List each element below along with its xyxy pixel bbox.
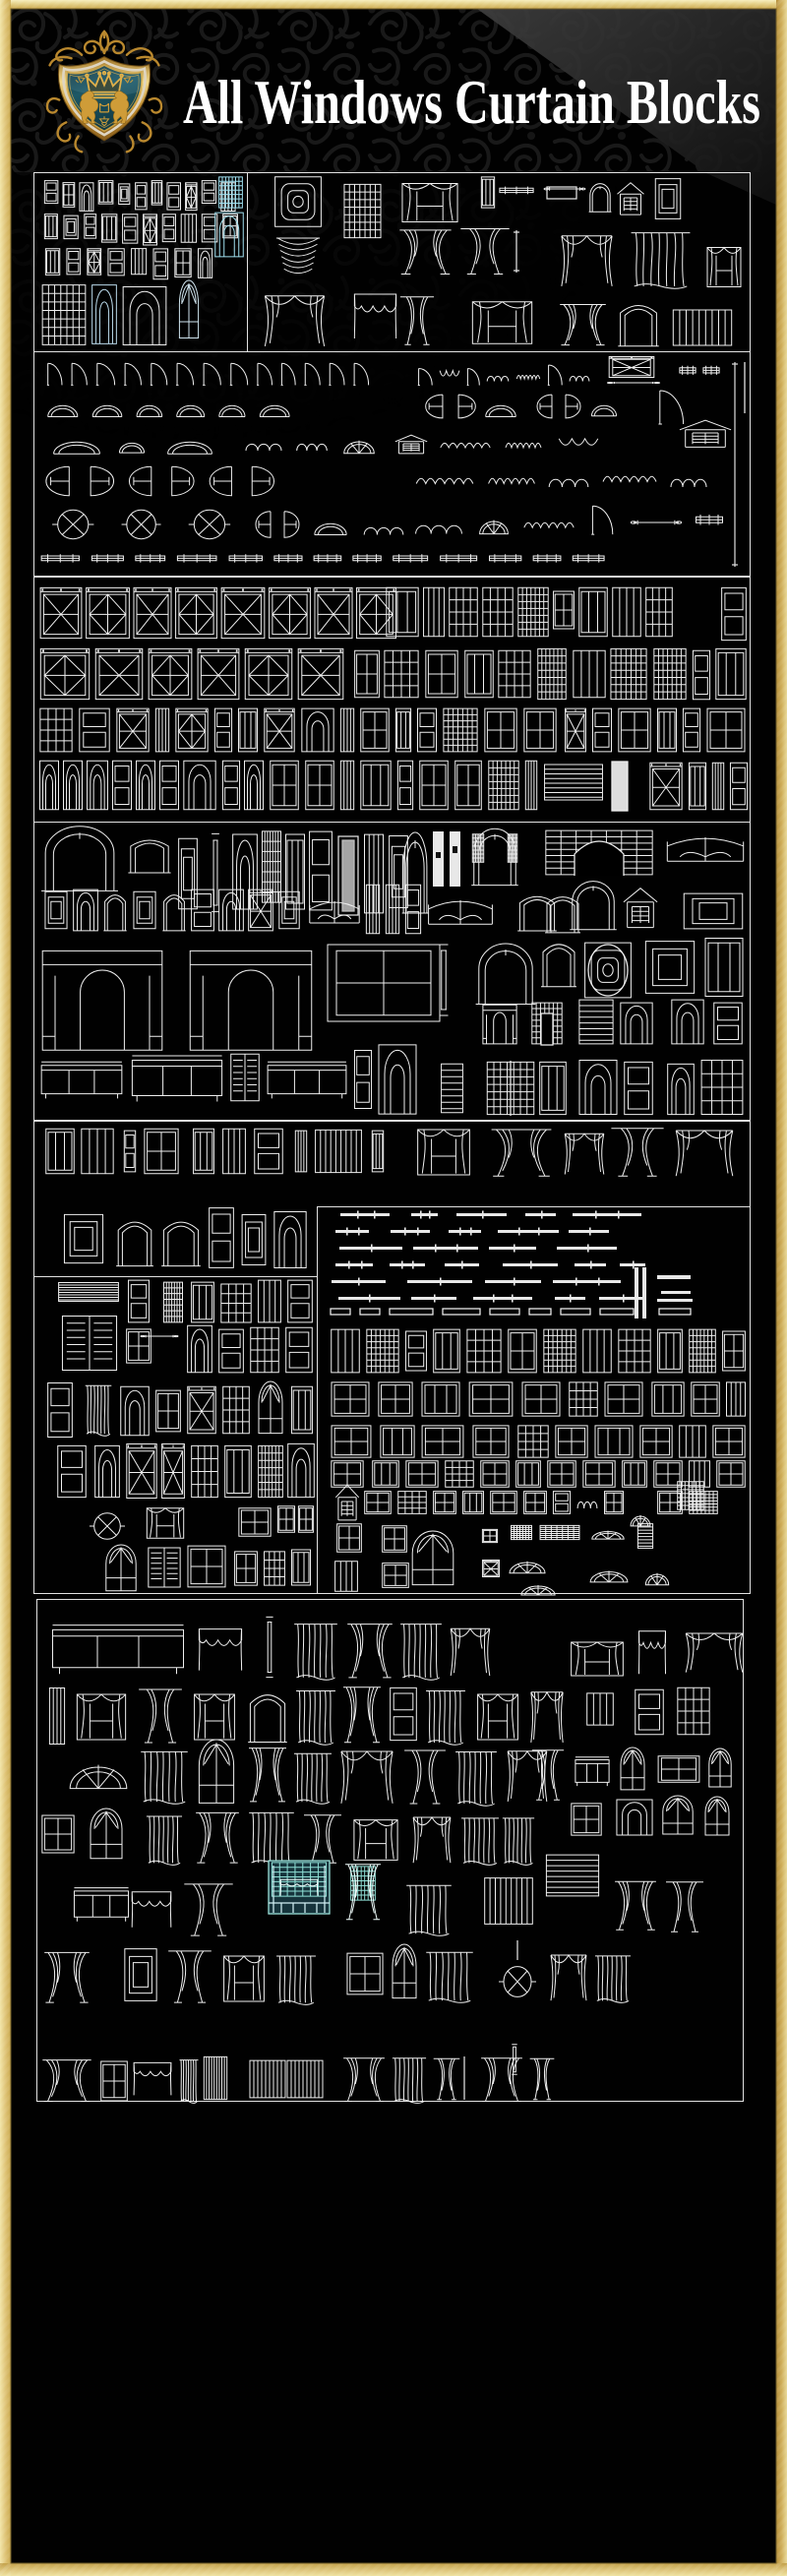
- svg-text:All Windows Curtain Blocks: All Windows Curtain Blocks: [183, 67, 760, 137]
